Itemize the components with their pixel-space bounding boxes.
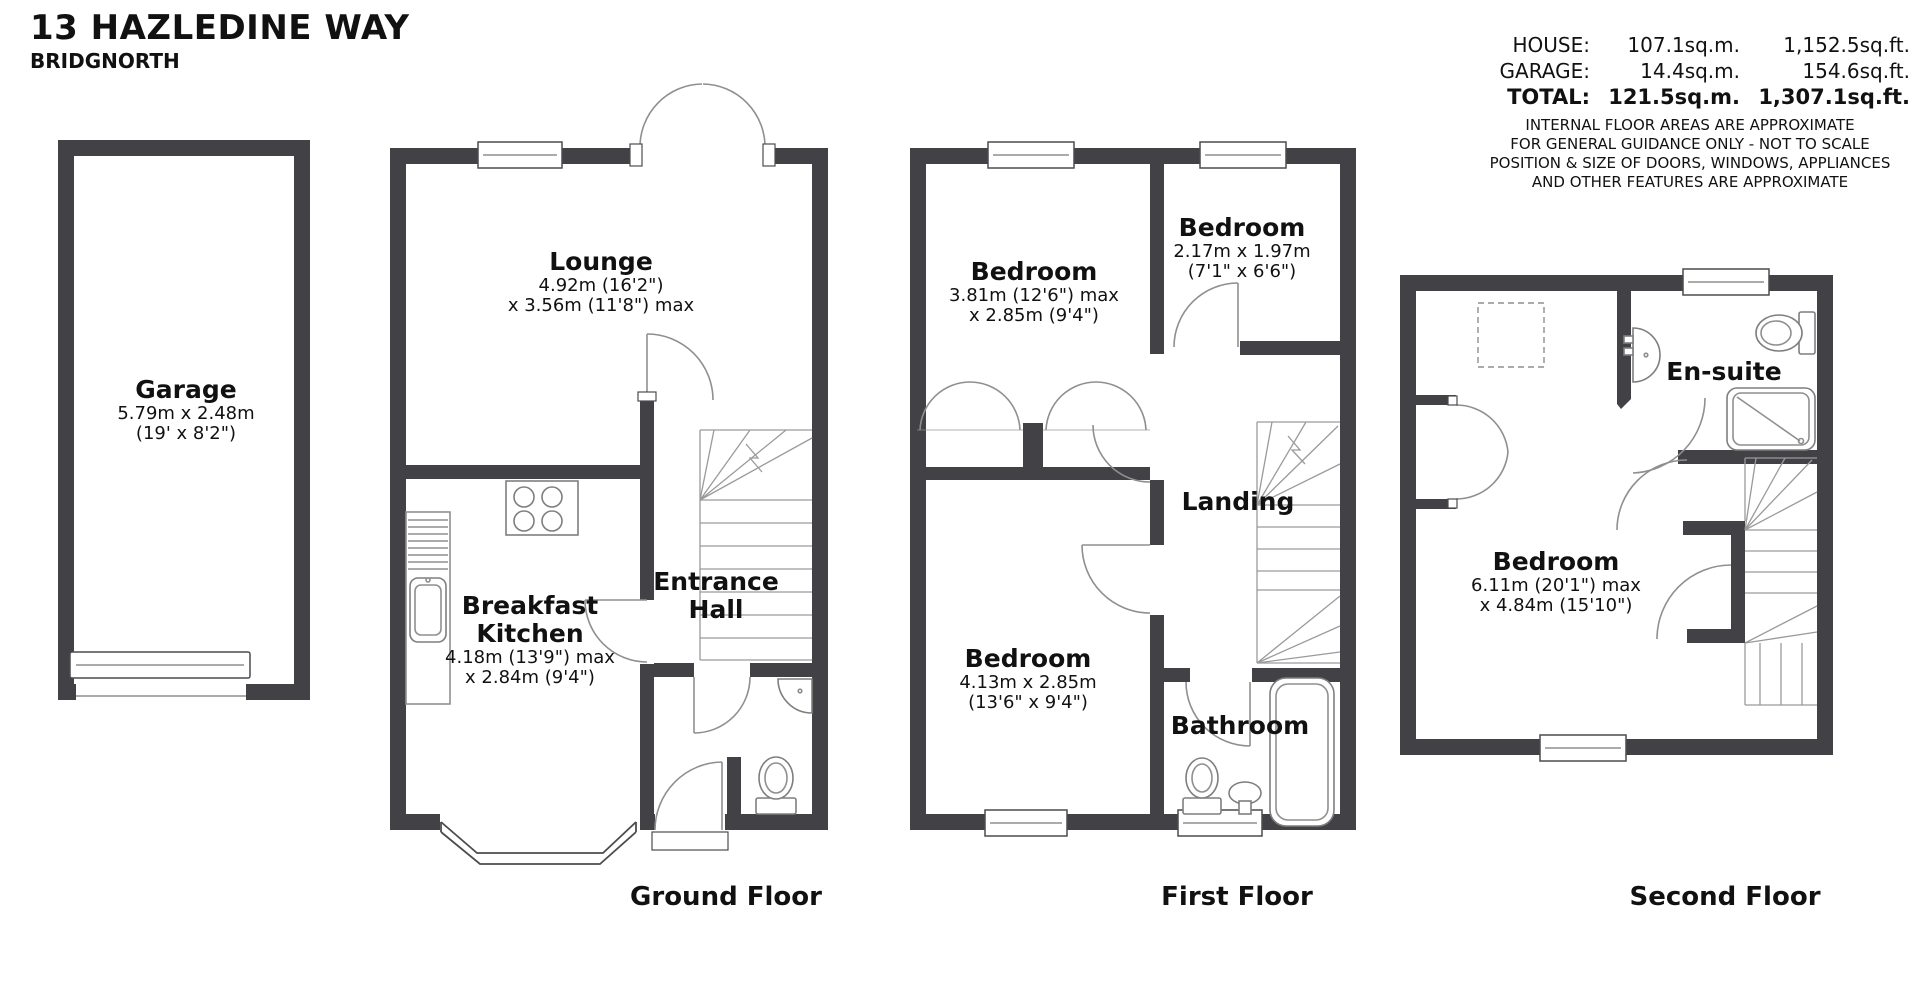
ground-stairs-icon (700, 430, 812, 660)
ground-floor-plan (390, 84, 828, 864)
front-door-icon (652, 762, 728, 850)
page-header: 13 HAZLEDINE WAY BRIDGNORTH (30, 10, 410, 73)
bedroom1-window-icon (988, 142, 1074, 168)
room-label-bedroom-2: Bedroom 2.17m x 1.97m (7'1" x 6'6") (1173, 214, 1310, 282)
room-label-bathroom: Bathroom (1171, 712, 1309, 740)
area-row-garage: GARAGE: 14.4sq.m. 154.6sq.ft. (1470, 58, 1910, 84)
room-label-landing: Landing (1182, 488, 1295, 516)
room-label-bedroom-3: Bedroom 4.13m x 2.85m (13'6" x 9'4") (959, 645, 1096, 713)
room-label-bedroom-4: Bedroom 6.11m (20'1") max x 4.84m (15'10… (1471, 548, 1641, 616)
room-label-ensuite: En-suite (1666, 358, 1781, 386)
room-label-entrance-hall: Entrance Hall (653, 568, 779, 624)
area-row-house: HOUSE: 107.1sq.m. 1,152.5sq.ft. (1470, 32, 1910, 58)
room-label-lounge: Lounge 4.92m (16'2") x 3.56m (11'8") max (508, 248, 694, 316)
bay-window-icon (441, 822, 636, 864)
first-floor-stairs-icon (1257, 422, 1340, 663)
bedroom2-door-icon (1174, 283, 1238, 347)
area-summary: HOUSE: 107.1sq.m. 1,152.5sq.ft. GARAGE: … (1470, 32, 1910, 192)
wc-door-icon (694, 677, 750, 733)
ensuite-toilet-icon (1756, 312, 1815, 354)
wardrobe-doors-icon (917, 382, 1150, 430)
room-label-breakfast-kitchen: Breakfast Kitchen 4.18m (13'9") max x 2.… (445, 592, 615, 688)
wc-sink-icon (778, 679, 812, 713)
second-floor-stairs-icon (1745, 458, 1817, 705)
shower-icon (1727, 388, 1815, 450)
wc-toilet-icon (756, 757, 796, 814)
closet-doors-icon (1448, 396, 1508, 508)
bedroom3-door-icon (1082, 545, 1150, 613)
hob-icon (506, 481, 578, 535)
room-label-garage: Garage 5.79m x 2.48m (19' x 8'2") (117, 376, 254, 444)
dashed-area-marker (1478, 303, 1544, 367)
bathroom-toilet-icon (1183, 758, 1221, 814)
second-floor-plan (1400, 269, 1833, 761)
property-title: 13 HAZLEDINE WAY (30, 10, 410, 47)
area-row-total: TOTAL: 121.5sq.m. 1,307.1sq.ft. (1470, 84, 1910, 110)
property-subtitle: BRIDGNORTH (30, 49, 410, 73)
floor-title-ground: Ground Floor (630, 882, 822, 912)
floor-title-second: Second Floor (1629, 882, 1820, 912)
room-label-bedroom-1: Bedroom 3.81m (12'6") max x 2.85m (9'4") (949, 258, 1119, 326)
floor-title-first: First Floor (1161, 882, 1313, 912)
garage-door-icon (70, 652, 250, 696)
bedroom4-window-icon (1540, 735, 1626, 761)
bedroom3-window-icon (985, 810, 1067, 836)
disclaimer: INTERNAL FLOOR AREAS ARE APPROXIMATE FOR… (1470, 116, 1910, 192)
bathroom-sink-icon (1229, 782, 1261, 814)
lounge-window-icon (478, 142, 562, 168)
french-doors-icon (630, 84, 775, 166)
kitchen-sink-icon (410, 578, 446, 642)
bath-icon (1270, 678, 1334, 826)
lounge-door-icon (638, 334, 713, 401)
bedroom2-window-icon (1200, 142, 1286, 168)
ensuite-window-icon (1683, 269, 1769, 295)
